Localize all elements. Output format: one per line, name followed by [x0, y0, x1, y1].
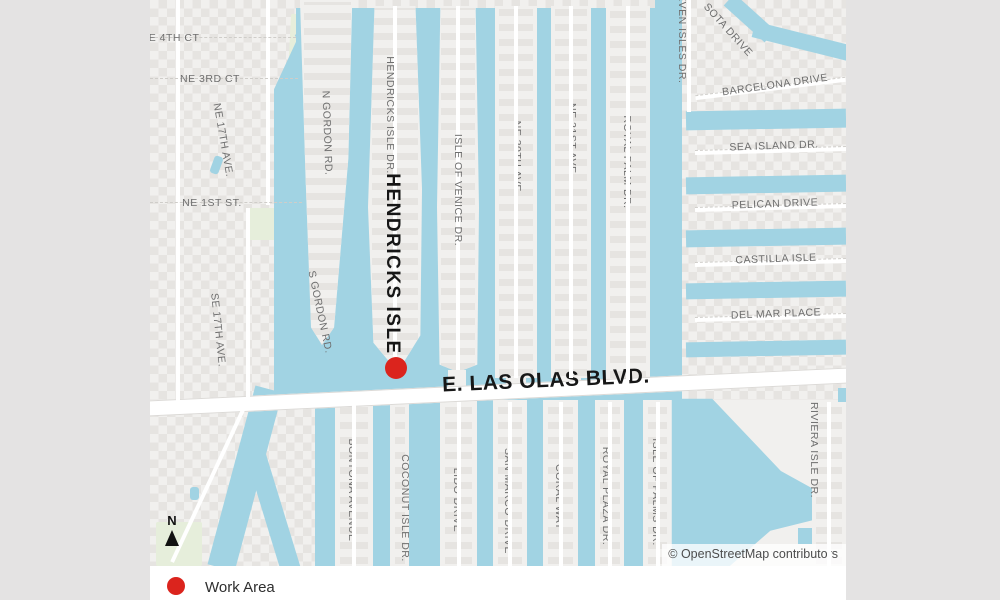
- map-card: NE 4TH CT NE 3RD CT NE 17TH AVE. NE 1ST …: [150, 0, 846, 600]
- legend-work-area-dot: [167, 577, 185, 595]
- water-canal: [686, 109, 846, 131]
- map-canvas: NE 4TH CT NE 3RD CT NE 17TH AVE. NE 1ST …: [150, 0, 846, 566]
- water-canal: [578, 398, 595, 566]
- isle-strip-lido: [441, 402, 476, 566]
- isle-strip-ne20: [495, 6, 537, 378]
- street-line: [266, 0, 270, 205]
- street-label-ne-1st-st: NE 1ST ST.: [182, 197, 242, 209]
- north-arrow-icon: [165, 530, 179, 546]
- label-hendricks-isle: HENDRICKS ISLE: [381, 173, 403, 354]
- water-canal: [686, 175, 846, 195]
- water-canal: [686, 340, 846, 358]
- water-canal: [477, 398, 493, 566]
- street-label-ne-4th-ct: NE 4TH CT: [150, 32, 199, 44]
- isle-strip-coral: [544, 402, 577, 566]
- water-canal: [686, 228, 846, 248]
- water-canal: [373, 398, 390, 566]
- water-canal: [624, 398, 643, 566]
- isle-strip-bontona: [336, 402, 372, 566]
- isle-strip-royal-palm: [606, 6, 650, 380]
- street-line: [176, 0, 180, 408]
- isle-strip-san-marco: [494, 402, 526, 566]
- street-line: [246, 208, 250, 404]
- street-label-seven-isles-dr: SEVEN ISLES DR.: [676, 0, 688, 83]
- legend-work-area-label: Work Area: [205, 579, 275, 596]
- work-area-marker: [385, 357, 407, 379]
- water-canal: [409, 398, 440, 566]
- water-canal: [315, 398, 335, 566]
- page-background: { "page": { "background_color": "#e4e3e3…: [0, 0, 1000, 600]
- water-canal: [527, 398, 543, 566]
- street-label-isle-of-venice-dr: ISLE OF VENICE DR.: [452, 134, 464, 246]
- map-attribution: © OpenStreetMap contributors: [662, 544, 846, 566]
- street-label-coconut-isle-dr: COCONUT ISLE DR.: [399, 454, 411, 562]
- water-canal: [686, 281, 846, 300]
- isle-strip-palms: [644, 402, 671, 566]
- street-label-ne-3rd-ct: NE 3RD CT: [180, 73, 240, 85]
- pond: [190, 487, 199, 500]
- street-label-riviera-isle-dr: RIVIERA ISLE DR.: [808, 402, 820, 498]
- north-letter: N: [167, 513, 176, 528]
- north-arrow: N: [162, 514, 182, 546]
- street-label-hendricks-isle-dr: HENDRICKS ISLE DR.: [384, 56, 396, 174]
- isle-strip-ne21: [551, 6, 591, 378]
